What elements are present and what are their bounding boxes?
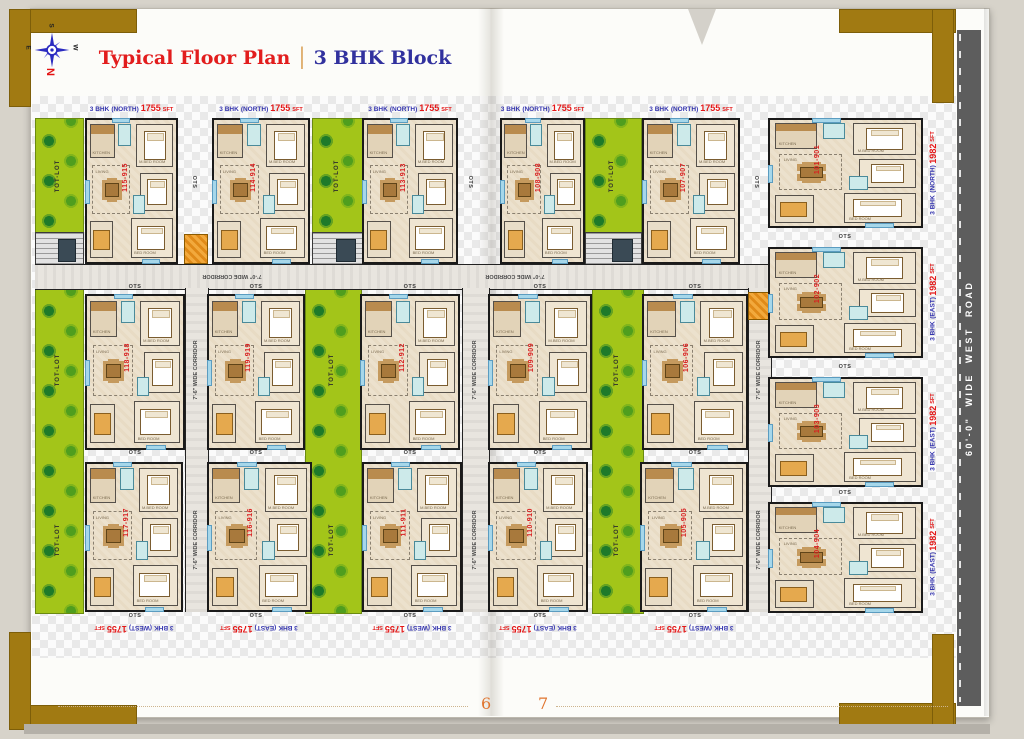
- room-sitout: [775, 580, 814, 608]
- bed: [554, 131, 574, 160]
- bed: [871, 423, 904, 443]
- bed: [554, 308, 578, 339]
- bed: [139, 573, 169, 598]
- window-icon: [865, 608, 894, 613]
- bed: [546, 409, 578, 435]
- room-kitchen: KITCHEN: [212, 468, 240, 503]
- room-kitchen: KITCHEN: [90, 124, 115, 158]
- room-toilet: [678, 468, 694, 490]
- unit-type-label: 3 BHK (WEST) 1755 SFT: [372, 624, 451, 634]
- room-sitout: [775, 454, 814, 482]
- dining-table: [663, 183, 678, 197]
- room-toilet: [823, 123, 846, 139]
- room-toilet: [540, 541, 552, 560]
- unit-type-area: 1755: [233, 624, 253, 634]
- room-bedroom: BED ROOM: [537, 565, 583, 606]
- room-kitchen: KITCHEN: [775, 382, 817, 407]
- room-bedroom: BED ROOM: [690, 218, 735, 258]
- room-bedroom: BED ROOM: [539, 401, 587, 444]
- room-bedroom: BED ROOM: [131, 218, 174, 258]
- ots-label: OTS: [689, 613, 702, 619]
- room-toilet: [823, 382, 846, 398]
- unit-type-area: 1755: [512, 624, 532, 634]
- bed: [148, 308, 171, 339]
- unit-number: 106-906: [683, 343, 690, 372]
- room-toilet: [696, 541, 710, 560]
- bed: [140, 409, 171, 435]
- bed: [272, 359, 293, 387]
- corner-ornament-bottom-left-v: [10, 633, 30, 729]
- window-icon: [114, 294, 133, 299]
- bed: [704, 131, 727, 160]
- bed: [701, 409, 734, 435]
- ots-label: OTS: [839, 234, 852, 240]
- unit-number: 111-911: [400, 509, 407, 537]
- unit-number: 101-901: [814, 145, 821, 174]
- unit-type-label: 3 BHK (EAST) 1755 SFT: [499, 624, 577, 634]
- bed: [866, 257, 902, 279]
- corridor-label: 7'-6" WIDE CORRIDOR: [472, 340, 478, 399]
- room-master-bedroom: M.BED ROOM: [696, 124, 735, 167]
- ots-label: OTS: [689, 284, 702, 290]
- bed: [709, 308, 734, 339]
- page-curl-shadow: [688, 9, 716, 45]
- tot-lot-label: TOT-LOT: [55, 160, 61, 193]
- window-icon: [207, 525, 212, 550]
- room-kitchen: KITCHEN: [365, 301, 392, 337]
- room-toilet: [398, 468, 412, 490]
- room-kitchen: KITCHEN: [493, 468, 520, 503]
- bed: [274, 475, 299, 505]
- sofa: [221, 230, 238, 250]
- bed: [853, 199, 902, 217]
- compass-star-icon: [33, 31, 71, 69]
- room-toilet: [258, 377, 270, 397]
- room-bedroom: BED ROOM: [255, 401, 300, 444]
- unit-number: 116-916: [247, 509, 254, 538]
- tot-lot-label: TOT-LOT: [609, 160, 615, 193]
- window-icon: [362, 525, 367, 550]
- room-toilet: [118, 124, 131, 145]
- unit-type-label: 3 BHK (EAST) 1982 SFT: [928, 263, 938, 341]
- room-sitout: [90, 404, 115, 444]
- room-kitchen: KITCHEN: [90, 301, 117, 337]
- room-sitout: [367, 221, 391, 258]
- floor-plan-unit-102-902: KITCHEN M.BED ROOM BED ROOM LIVING 102-9…: [768, 247, 923, 358]
- corridor-horizontal: [35, 264, 770, 290]
- unit-type-label: 3 BHK (NORTH) 1755 SFT: [501, 103, 584, 113]
- ots-label: OTS: [250, 450, 263, 456]
- unit-type-sft: SFT: [930, 131, 936, 141]
- corner-ornament-bottom-right-v: [933, 635, 953, 727]
- unit-type-sft: SFT: [930, 518, 936, 528]
- bed: [871, 293, 904, 313]
- room-kitchen: KITCHEN: [775, 123, 817, 148]
- bed: [425, 475, 448, 505]
- window-icon: [237, 462, 257, 467]
- bed: [709, 475, 734, 505]
- title-separator: |: [299, 44, 304, 72]
- bed: [547, 226, 573, 250]
- unit-type-bhk: 3 BHK: [930, 451, 937, 471]
- window-icon: [670, 118, 689, 123]
- window-icon: [812, 118, 841, 123]
- floor-plan-unit-112-912: KITCHEN M.BED ROOM BED ROOM LIVING 112-9…: [360, 294, 460, 450]
- unit-number: 119-919: [245, 343, 252, 372]
- bed: [266, 226, 296, 250]
- room-kitchen: KITCHEN: [367, 124, 393, 158]
- unit-type-bhk: 3 BHK: [930, 576, 937, 596]
- floor-plan-unit-119-919: KITCHEN M.BED ROOM BED ROOM LIVING 119-9…: [207, 294, 305, 450]
- window-icon: [642, 360, 647, 386]
- room-living-dining: LIVING: [779, 413, 842, 449]
- unit-number: 113-913: [400, 163, 407, 192]
- room-toilet: [849, 306, 869, 320]
- room-kitchen: KITCHEN: [775, 252, 817, 278]
- sofa: [649, 577, 668, 598]
- bed: [866, 387, 902, 409]
- room-toilet: [414, 541, 426, 560]
- window-icon: [768, 165, 773, 184]
- room-bedroom: BED ROOM: [844, 323, 916, 353]
- unit-type-bhk: 3 BHK: [557, 624, 577, 631]
- window-icon: [640, 525, 645, 550]
- room-kitchen: KITCHEN: [90, 468, 116, 503]
- window-icon: [145, 607, 164, 612]
- room-master-bedroom: M.BED ROOM: [545, 301, 587, 347]
- room-living-dining: LIVING: [779, 154, 842, 190]
- bed: [713, 359, 736, 387]
- floor-plan-unit-101-901: KITCHEN M.BED ROOM BED ROOM LIVING 101-9…: [768, 118, 923, 228]
- unit-type-facing: (NORTH): [111, 106, 138, 113]
- corridor-label: 7'-6" WIDE CORRIDOR: [193, 340, 199, 399]
- window-icon: [421, 445, 440, 450]
- room-sitout: [493, 404, 519, 444]
- unit-type-bhk: 3 BHK: [368, 106, 388, 113]
- ots-label: OTS: [404, 284, 417, 290]
- bed: [557, 359, 579, 387]
- staircase-lift-block: [35, 232, 84, 268]
- room-toilet: [133, 195, 145, 213]
- unit-type-sft: SFT: [574, 107, 584, 113]
- unit-type-facing: (EAST): [930, 553, 937, 575]
- unit-number: 117-917: [123, 509, 130, 538]
- unit-type-sft: SFT: [163, 107, 173, 113]
- dining-table: [106, 364, 121, 379]
- unit-type-area: 1755: [552, 103, 572, 113]
- floor-plan-unit-117-917: KITCHEN M.BED ROOM BED ROOM LIVING 117-9…: [85, 462, 183, 612]
- bed: [277, 524, 299, 551]
- window-icon: [865, 223, 894, 228]
- unit-type-sft: SFT: [372, 624, 382, 630]
- room-master-bedroom: M.BED ROOM: [415, 301, 455, 347]
- lift-shaft: [748, 292, 770, 320]
- window-icon: [240, 118, 259, 123]
- bed: [150, 524, 171, 551]
- window-icon: [865, 482, 894, 487]
- dining-table: [383, 183, 397, 197]
- unit-type-label: 3 BHK (EAST) 1982 SFT: [928, 518, 938, 596]
- unit-type-label: 3 BHK (EAST) 1755 SFT: [220, 624, 298, 634]
- footer-leader-left: [58, 706, 468, 707]
- ots-label: OTS: [129, 613, 142, 619]
- corridor-label: 7'-6" WIDE CORRIDOR: [472, 510, 478, 569]
- room-sitout: [212, 404, 236, 444]
- window-icon: [235, 294, 254, 299]
- unit-number: 103-903: [814, 404, 821, 433]
- floor-plan-unit-111-911: KITCHEN M.BED ROOM BED ROOM LIVING 111-9…: [362, 462, 462, 612]
- unit-number: 115-915: [122, 163, 129, 192]
- bed: [853, 584, 902, 602]
- window-icon: [85, 180, 90, 205]
- dining-table: [509, 529, 524, 543]
- staircase-lift-block: [312, 232, 364, 268]
- ots-label: OTS: [250, 613, 263, 619]
- room-master-bedroom: M.BED ROOM: [853, 507, 916, 539]
- bed: [696, 226, 726, 250]
- brochure-spread: S E W N Typical Floor Plan | 3 BHK Block…: [0, 0, 1024, 739]
- unit-type-bhk: 3 BHK: [154, 624, 174, 631]
- room-master-bedroom: M.BED ROOM: [853, 382, 916, 414]
- room-toilet: [693, 195, 705, 213]
- unit-type-facing: (NORTH): [930, 166, 937, 193]
- sofa: [93, 230, 109, 250]
- room-kitchen: KITCHEN: [212, 301, 238, 337]
- unit-type-bhk: 3 BHK: [649, 106, 669, 113]
- bed: [274, 131, 297, 160]
- corridor-label: 7'-6" WIDE CORRIDOR: [756, 340, 762, 399]
- corridor-label: 7'-0" WIDE CORRIDOR: [202, 273, 261, 279]
- ots-label: OTS: [753, 176, 759, 189]
- unit-type-bhk: 3 BHK: [90, 106, 110, 113]
- window-icon: [488, 525, 493, 550]
- bed: [871, 548, 904, 568]
- room-toilet: [412, 195, 424, 213]
- ots-label: OTS: [129, 450, 142, 456]
- floor-plan-unit-104-904: KITCHEN M.BED ROOM BED ROOM LIVING 104-9…: [768, 502, 923, 613]
- window-icon: [642, 180, 647, 205]
- floor-plan-unit-116-916: KITCHEN M.BED ROOM BED ROOM LIVING 116-9…: [207, 462, 312, 612]
- tot-lot-green-strip: [592, 288, 644, 614]
- corridor-label: 7'-6" WIDE CORRIDOR: [193, 510, 199, 569]
- window-icon: [85, 525, 90, 550]
- floor-plan-unit-114-914: KITCHEN M.BED ROOM BED ROOM LIVING 114-9…: [212, 118, 310, 264]
- title-red: Typical Floor Plan: [99, 47, 291, 69]
- sofa: [651, 413, 670, 435]
- room-master-bedroom: M.BED ROOM: [543, 468, 583, 512]
- unit-type-facing: (NORTH): [522, 106, 549, 113]
- room-kitchen: KITCHEN: [504, 124, 527, 158]
- unit-number: 105-905: [681, 508, 688, 537]
- unit-type-facing: (NORTH): [241, 106, 268, 113]
- unit-type-facing: (EAST): [534, 624, 556, 631]
- window-icon: [362, 180, 367, 205]
- window-icon: [707, 607, 728, 612]
- table-edge: [24, 724, 990, 734]
- room-bedroom: BED ROOM: [844, 193, 916, 223]
- bed: [853, 458, 902, 476]
- unit-type-bhk: 3 BHK: [930, 321, 937, 341]
- room-bedroom: BED ROOM: [542, 218, 581, 258]
- room-toilet: [849, 435, 869, 449]
- bed: [427, 359, 448, 387]
- room-master-bedroom: M.BED ROOM: [699, 468, 743, 512]
- sofa: [370, 230, 387, 250]
- bed: [700, 573, 734, 598]
- unit-type-sft: SFT: [292, 107, 302, 113]
- room-sitout: [775, 195, 814, 223]
- dining-table: [665, 364, 681, 379]
- footer-leader-right: [556, 706, 948, 707]
- ots-label: OTS: [534, 613, 547, 619]
- room-bedroom: BED ROOM: [694, 401, 743, 444]
- window-icon: [423, 607, 442, 612]
- room-toilet: [542, 377, 555, 397]
- window-icon: [865, 353, 894, 358]
- unit-type-bhk: 3 BHK: [278, 624, 298, 631]
- ots-label: OTS: [191, 176, 197, 189]
- window-icon: [391, 462, 410, 467]
- unit-number: 102-902: [814, 274, 821, 303]
- bed: [137, 226, 166, 250]
- unit-number: 104-904: [814, 529, 821, 558]
- room-toilet: [697, 377, 710, 397]
- bed: [415, 409, 446, 435]
- sofa: [651, 230, 668, 250]
- dining-table: [233, 183, 248, 197]
- room-bedroom: BED ROOM: [693, 565, 743, 606]
- room-sitout: [647, 221, 671, 258]
- room-toilet: [242, 301, 256, 324]
- unit-type-area: 1755: [141, 103, 161, 113]
- unit-type-sft: SFT: [94, 624, 104, 630]
- floor-plan-unit-106-906: KITCHEN M.BED ROOM BED ROOM LIVING 106-9…: [642, 294, 748, 450]
- unit-type-area: 1755: [419, 103, 439, 113]
- window-icon: [673, 294, 693, 299]
- room-kitchen: KITCHEN: [493, 301, 521, 337]
- room-kitchen: KITCHEN: [367, 468, 394, 503]
- dining-table: [663, 529, 679, 543]
- room-bedroom: BED ROOM: [260, 218, 305, 258]
- window-icon: [389, 294, 408, 299]
- unit-type-facing: (WEST): [689, 624, 712, 631]
- window-icon: [552, 445, 572, 450]
- unit-type-label: 3 BHK (NORTH) 1982 SFT: [928, 131, 938, 214]
- window-icon: [525, 118, 542, 123]
- unit-type-label: 3 BHK (WEST) 1755 SFT: [94, 624, 173, 634]
- tot-lot-label: TOT-LOT: [614, 354, 620, 387]
- tot-lot-label: TOT-LOT: [614, 524, 620, 557]
- unit-type-bhk: 3 BHK: [501, 106, 521, 113]
- room-master-bedroom: M.BED ROOM: [139, 468, 178, 512]
- window-icon: [518, 294, 538, 299]
- sofa: [508, 230, 523, 250]
- room-toilet: [136, 541, 148, 560]
- dining-table: [105, 183, 119, 197]
- unit-type-sft: SFT: [654, 624, 664, 630]
- unit-number: 109-909: [528, 343, 535, 372]
- floor-plan-unit-118-918: KITCHEN M.BED ROOM BED ROOM LIVING 118-9…: [85, 294, 185, 450]
- room-sitout: [217, 221, 241, 258]
- bed: [147, 475, 170, 505]
- unit-number: 108-908: [535, 163, 542, 192]
- window-icon: [112, 118, 130, 123]
- dining-table: [510, 364, 526, 379]
- unit-type-label: 3 BHK (NORTH) 1755 SFT: [368, 103, 451, 113]
- room-bedroom: BED ROOM: [411, 565, 457, 606]
- window-icon: [360, 360, 365, 386]
- sofa: [780, 587, 807, 602]
- unit-type-facing: (NORTH): [671, 106, 698, 113]
- ots-label: OTS: [129, 284, 142, 290]
- bed: [265, 573, 298, 598]
- ots-label: OTS: [404, 613, 417, 619]
- bed: [543, 573, 574, 598]
- bed: [269, 308, 292, 339]
- room-toilet: [247, 124, 261, 145]
- bed: [866, 512, 902, 534]
- unit-type-bhk: 3 BHK: [930, 195, 937, 215]
- room-toilet: [412, 377, 424, 397]
- window-icon: [207, 360, 212, 386]
- page-number-right: 7: [538, 694, 548, 713]
- room-bedroom: BED ROOM: [844, 578, 916, 608]
- window-icon: [812, 502, 841, 507]
- room-toilet: [849, 561, 869, 575]
- dining-table: [518, 183, 531, 197]
- unit-number: 107-907: [680, 163, 687, 192]
- bed: [415, 226, 445, 250]
- tot-lot-green-strip: [35, 288, 84, 614]
- unit-type-facing: (EAST): [930, 298, 937, 320]
- room-toilet: [262, 541, 275, 560]
- floor-plan-unit-105-905: KITCHEN M.BED ROOM BED ROOM LIVING 105-9…: [640, 462, 748, 612]
- room-sitout: [90, 221, 113, 258]
- ots-label: OTS: [250, 284, 263, 290]
- dining-table: [229, 529, 245, 543]
- unit-type-area: 1755: [270, 103, 290, 113]
- floor-plan-unit-107-907: KITCHEN M.BED ROOM BED ROOM LIVING 107-9…: [642, 118, 740, 264]
- sheet-edge-shadow: [984, 8, 992, 716]
- corner-ornament-top-right-v: [933, 10, 953, 102]
- sofa: [780, 332, 807, 347]
- room-bedroom: BED ROOM: [409, 401, 455, 444]
- window-icon: [671, 462, 692, 467]
- room-bedroom: BED ROOM: [409, 218, 453, 258]
- lift-shaft: [184, 234, 208, 264]
- room-master-bedroom: M.BED ROOM: [415, 124, 454, 167]
- bed: [426, 179, 446, 205]
- room-kitchen: KITCHEN: [775, 507, 817, 533]
- sofa: [780, 202, 807, 217]
- sofa: [369, 413, 387, 435]
- window-icon: [768, 549, 773, 568]
- bed: [429, 524, 450, 551]
- floor-plan-unit-115-915: KITCHEN M.BED ROOM BED ROOM LIVING 115-9…: [85, 118, 178, 264]
- unit-number: 112-912: [399, 343, 406, 372]
- room-sitout: [212, 568, 238, 606]
- compass-rose: S E W N: [26, 22, 78, 78]
- unit-type-sft: SFT: [722, 107, 732, 113]
- room-sitout: [647, 404, 674, 444]
- compass-west: W: [72, 44, 79, 50]
- unit-type-facing: (WEST): [407, 624, 430, 631]
- bed: [551, 475, 574, 505]
- room-master-bedroom: M.BED ROOM: [417, 468, 457, 512]
- room-toilet: [120, 468, 134, 490]
- room-toilet: [525, 301, 540, 324]
- unit-type-bhk: 3 BHK: [219, 106, 239, 113]
